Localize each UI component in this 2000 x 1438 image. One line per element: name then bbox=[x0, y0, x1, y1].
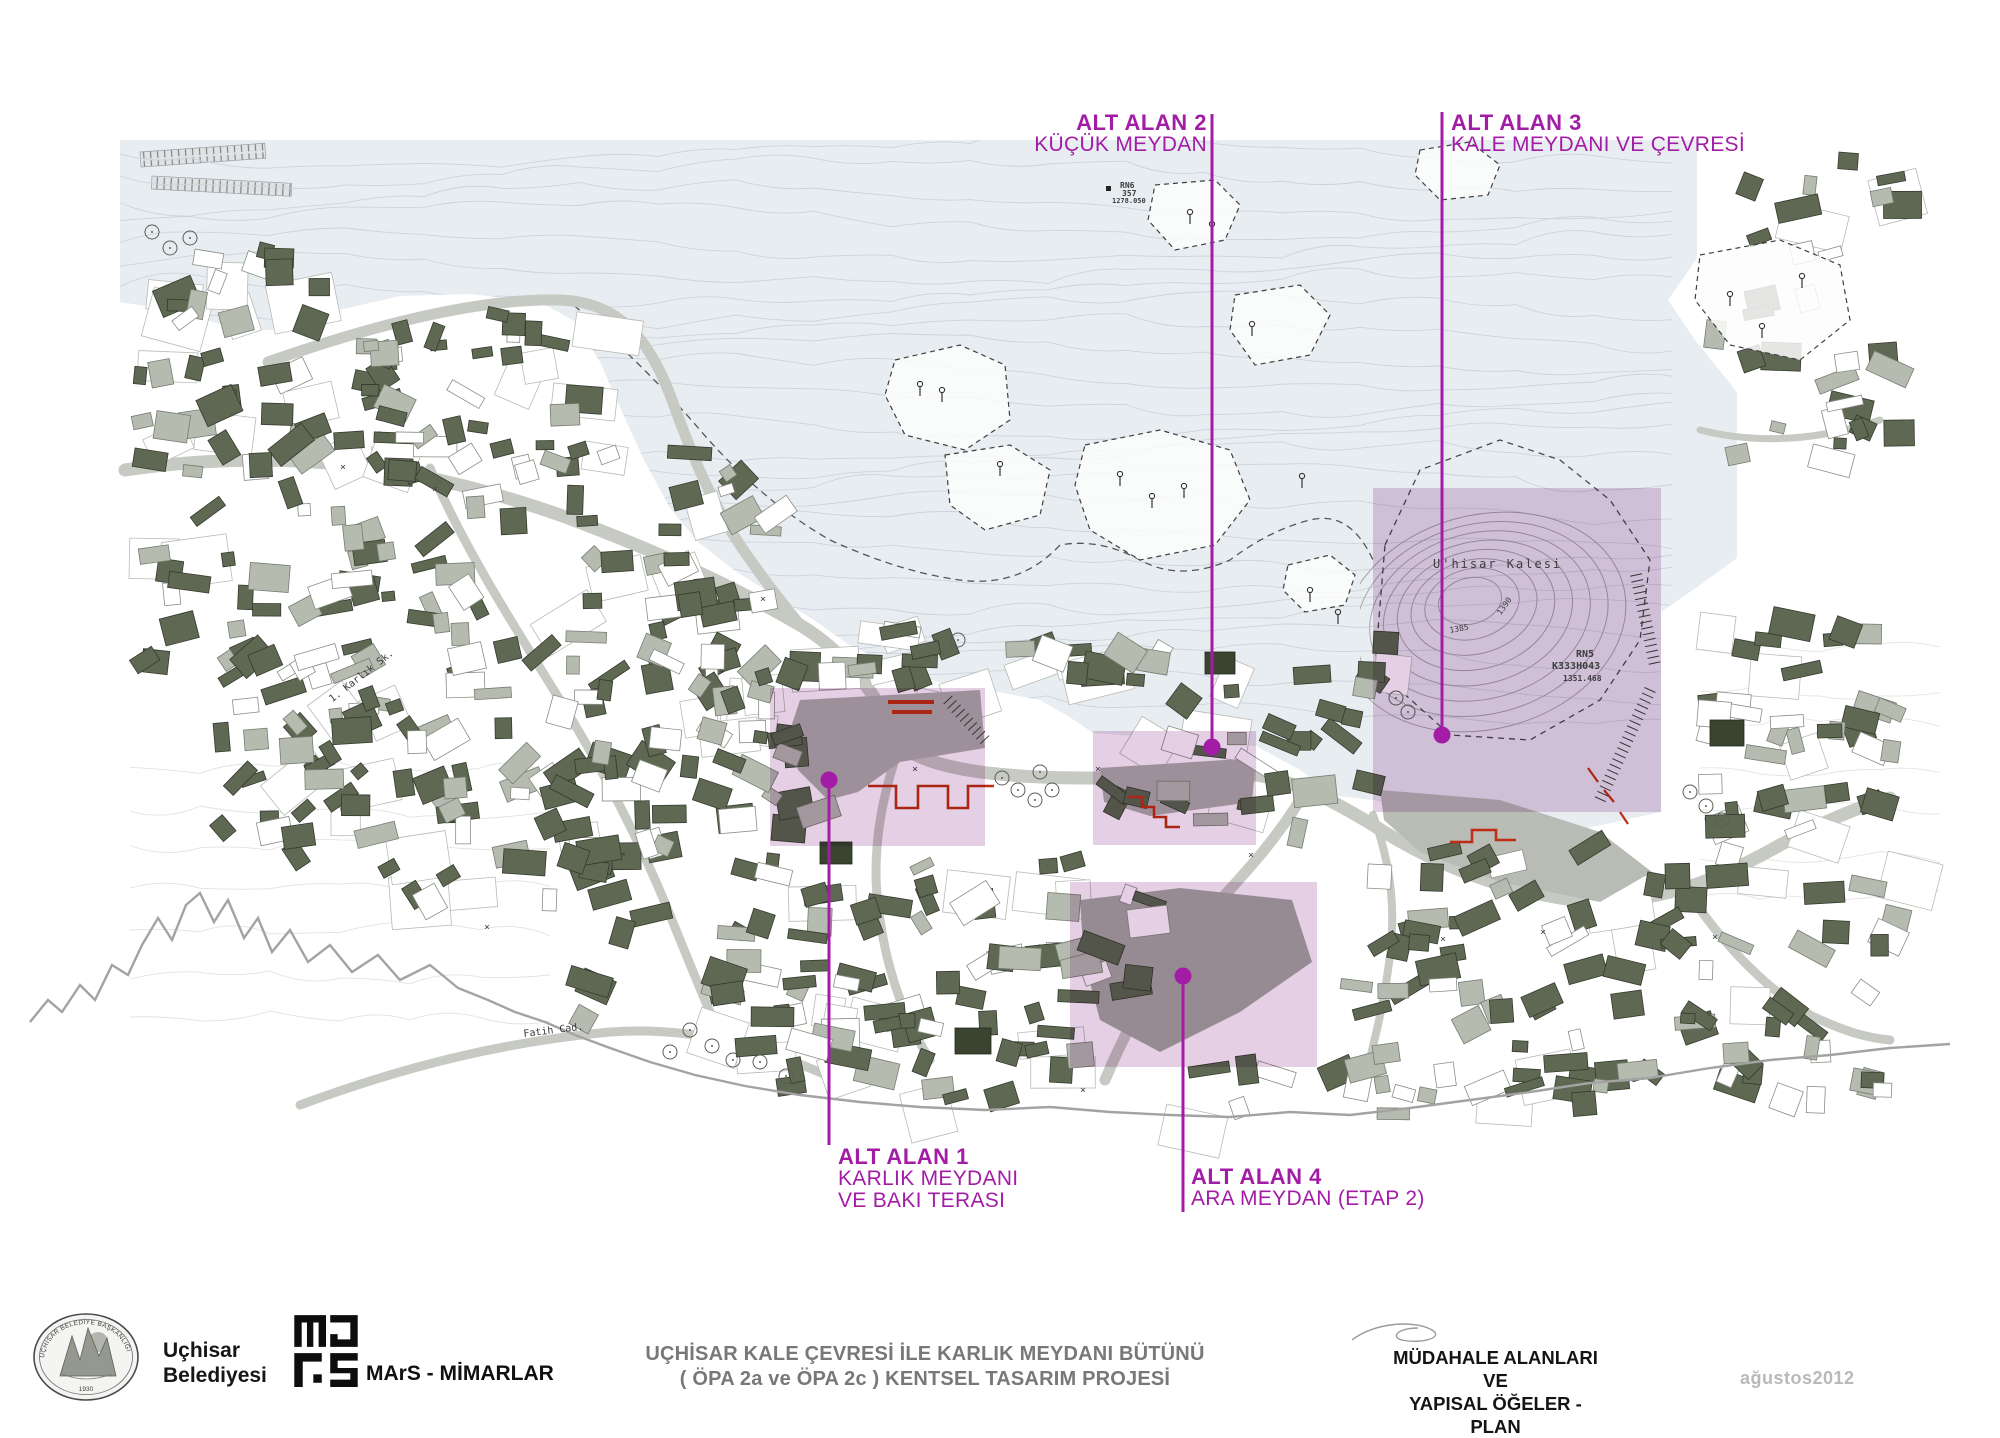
urban-design-plan-sheet: ×××××××××××× U'hisar Kalesi13851390RN5K3… bbox=[0, 0, 2000, 1414]
municipality-name: Uçhisar Belediyesi bbox=[163, 1338, 267, 1388]
svg-text:×: × bbox=[1712, 932, 1718, 943]
svg-text:×: × bbox=[484, 922, 490, 933]
area-label-3: ALT ALAN 3KALE MEYDANI VE ÇEVRESİ bbox=[1451, 112, 1745, 156]
intervention-area-4 bbox=[1070, 882, 1317, 1067]
svg-text:×: × bbox=[432, 484, 438, 495]
intervention-area-3 bbox=[1373, 488, 1661, 812]
date-label: ağustos2012 bbox=[1740, 1368, 1852, 1389]
area-label-title: ALT ALAN 3 bbox=[1451, 112, 1745, 134]
mars-architects-logo bbox=[291, 1313, 361, 1387]
area-label-title: ALT ALAN 2 bbox=[1034, 112, 1207, 134]
area-label-subtitle: VE BAKI TERASI bbox=[838, 1190, 1018, 1212]
intervention-area-1 bbox=[770, 688, 985, 846]
area-label-1: ALT ALAN 1KARLIK MEYDANIVE BAKI TERASI bbox=[838, 1146, 1018, 1212]
svg-text:×: × bbox=[1080, 1085, 1086, 1096]
area-label-2: ALT ALAN 2KÜÇÜK MEYDAN bbox=[1034, 112, 1207, 156]
municipality-seal-logo: UÇHİSAR BELEDİYE BAŞKANLIĞI 1930 bbox=[20, 1310, 170, 1410]
project-title: UÇHİSAR KALE ÇEVRESİ İLE KARLIK MEYDANI … bbox=[600, 1342, 1250, 1392]
svg-text:×: × bbox=[340, 462, 346, 473]
area-label-subtitle: KARLIK MEYDANI bbox=[838, 1168, 1018, 1190]
area-label-subtitle: KALE MEYDANI VE ÇEVRESİ bbox=[1451, 134, 1745, 156]
svg-text:×: × bbox=[1440, 934, 1446, 945]
area-label-subtitle: ARA MEYDAN (ETAP 2) bbox=[1191, 1188, 1425, 1210]
architect-firm-name: MArS - MİMARLAR bbox=[366, 1362, 554, 1386]
sheet-title: MÜDAHALE ALANLARI VE YAPISAL ÖĞELER - PL… bbox=[1383, 1346, 1608, 1438]
svg-text:×: × bbox=[1540, 927, 1546, 938]
intervention-area-2 bbox=[1093, 731, 1256, 845]
area-label-4: ALT ALAN 4ARA MEYDAN (ETAP 2) bbox=[1191, 1166, 1425, 1210]
area-label-subtitle: KÜÇÜK MEYDAN bbox=[1034, 134, 1207, 156]
svg-text:×: × bbox=[1248, 850, 1254, 861]
area-label-title: ALT ALAN 1 bbox=[838, 1146, 1018, 1168]
seal-year: 1930 bbox=[79, 1386, 94, 1393]
svg-text:×: × bbox=[760, 594, 766, 605]
area-label-title: ALT ALAN 4 bbox=[1191, 1166, 1425, 1188]
svg-text:×: × bbox=[620, 849, 626, 860]
